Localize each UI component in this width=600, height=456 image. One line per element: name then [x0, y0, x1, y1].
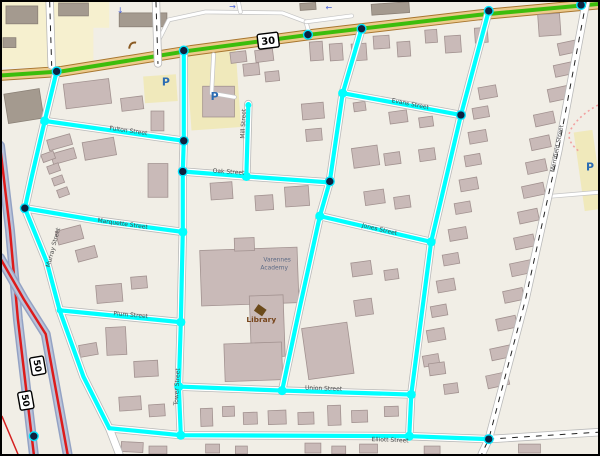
route-50-shield: 50 — [29, 356, 46, 376]
selected-route-edge[interactable] — [409, 11, 488, 436]
building — [472, 106, 490, 119]
building — [57, 187, 70, 198]
building — [394, 195, 411, 209]
building — [329, 43, 343, 61]
building — [351, 145, 379, 168]
parking-icon: P — [162, 75, 170, 88]
building — [364, 189, 386, 206]
route-50-shield-text: 50 — [31, 359, 43, 373]
building — [47, 134, 73, 151]
route-junction-dot[interactable] — [176, 431, 185, 440]
building — [149, 404, 166, 417]
network-node-marker[interactable] — [457, 111, 466, 120]
building — [120, 96, 143, 111]
library-label: Library — [246, 315, 276, 324]
route-junction-dot-small[interactable] — [57, 307, 63, 313]
building — [301, 102, 324, 120]
building — [389, 110, 408, 124]
route-junction-dot[interactable] — [176, 318, 185, 327]
building — [302, 322, 354, 379]
route-50-shield-text: 50 — [19, 394, 31, 408]
route-junction-dot[interactable] — [278, 386, 287, 395]
building — [459, 177, 479, 192]
network-node-marker[interactable] — [484, 435, 493, 444]
building — [332, 446, 346, 454]
building — [200, 408, 213, 426]
network-node-marker[interactable] — [20, 204, 29, 213]
building — [243, 63, 260, 76]
building — [424, 446, 440, 454]
landmark-curl — [129, 43, 136, 49]
building — [210, 182, 233, 200]
building — [268, 410, 286, 424]
building — [255, 195, 274, 211]
building — [3, 38, 16, 48]
service-road — [238, 2, 240, 12]
building — [384, 152, 401, 166]
building — [47, 163, 61, 175]
building — [425, 29, 438, 43]
building — [224, 342, 283, 382]
building — [442, 252, 460, 265]
building — [119, 396, 142, 411]
building — [106, 327, 127, 356]
network-node-marker[interactable] — [577, 2, 586, 9]
network-node-marker[interactable] — [304, 30, 313, 39]
parking-lot — [143, 74, 178, 103]
building — [468, 129, 488, 144]
building — [284, 186, 309, 207]
street-label: Marquette Street — [97, 217, 149, 231]
building — [131, 276, 148, 289]
building — [63, 79, 111, 109]
building — [300, 2, 316, 10]
building — [418, 148, 435, 162]
building — [514, 234, 536, 250]
building — [222, 406, 234, 416]
street-selected-casing — [409, 11, 488, 436]
street-label: Elliott Street — [371, 436, 409, 444]
route-junction-dot[interactable] — [427, 237, 436, 246]
building — [243, 412, 257, 424]
street-label: Murray Street — [45, 226, 62, 268]
building — [397, 41, 411, 57]
building — [235, 446, 247, 454]
building — [309, 41, 323, 61]
oneway-arrow-icon: ← — [325, 3, 332, 12]
route-junction-dot[interactable] — [407, 390, 416, 399]
network-node-marker[interactable] — [178, 167, 187, 176]
route-junction-dot[interactable] — [338, 89, 347, 98]
network-node-marker[interactable] — [29, 432, 38, 441]
building — [384, 406, 398, 416]
street-top-west — [50, 2, 52, 65]
building — [538, 13, 561, 36]
building — [265, 71, 280, 82]
street-selected — [409, 11, 488, 436]
building — [4, 89, 44, 124]
building — [518, 208, 540, 224]
building — [430, 304, 448, 317]
academy-label-line2: Academy — [260, 265, 288, 272]
building — [79, 343, 99, 358]
route-junction-dot[interactable] — [315, 212, 324, 221]
network-node-marker[interactable] — [179, 46, 188, 55]
building — [354, 298, 374, 316]
map-svg[interactable]: Fulton StreetMarquette StreetMurray Stre… — [2, 2, 598, 454]
street-label: Merrifield Street — [549, 124, 565, 173]
building — [305, 443, 321, 453]
building — [464, 153, 482, 166]
building — [353, 101, 366, 111]
building — [351, 260, 373, 277]
building — [230, 51, 247, 64]
building — [96, 283, 123, 303]
building — [149, 446, 167, 454]
route-junction-dot[interactable] — [178, 227, 187, 236]
building — [373, 35, 390, 49]
building — [121, 442, 143, 453]
building — [151, 111, 164, 131]
street-label: Jones Street — [360, 222, 398, 237]
network-node-marker[interactable] — [357, 24, 366, 33]
network-node-marker[interactable] — [52, 67, 61, 76]
map-viewport[interactable]: Fulton StreetMarquette StreetMurray Stre… — [0, 0, 600, 456]
building — [522, 182, 546, 198]
street-label: Union Street — [305, 385, 343, 393]
building — [234, 238, 254, 252]
route-junction-dot-small[interactable] — [245, 102, 251, 108]
building — [448, 227, 468, 242]
building — [454, 201, 472, 214]
route-30-shield: 30 — [257, 32, 280, 49]
building — [384, 269, 399, 281]
building — [298, 412, 314, 424]
network-node-marker[interactable] — [179, 136, 188, 145]
building — [525, 159, 547, 175]
oneway-arrow-icon: → — [229, 2, 236, 11]
building — [426, 328, 446, 343]
building — [351, 410, 367, 422]
building — [443, 383, 458, 395]
oneway-arrow-icon: ↓ — [117, 6, 124, 15]
building — [305, 128, 322, 141]
building — [59, 3, 89, 16]
parking-icon: P — [211, 90, 219, 103]
building — [519, 444, 541, 453]
building — [134, 360, 159, 377]
building — [371, 2, 409, 15]
building — [478, 85, 498, 100]
building — [75, 245, 97, 262]
building — [255, 49, 274, 63]
building — [529, 135, 551, 151]
building — [419, 116, 434, 128]
parking-icon: P — [586, 161, 594, 174]
building — [360, 444, 378, 453]
network-node-marker[interactable] — [325, 177, 334, 186]
building — [6, 6, 38, 24]
building — [206, 444, 220, 453]
building — [436, 278, 456, 293]
route-junction-dot[interactable] — [40, 116, 49, 125]
building — [444, 35, 461, 53]
route-50-shield: 50 — [17, 390, 34, 410]
network-node-marker[interactable] — [484, 7, 493, 16]
building — [327, 405, 341, 425]
building — [82, 137, 116, 160]
building — [533, 111, 555, 127]
route-30-shield-text: 30 — [261, 35, 276, 48]
building — [428, 362, 445, 376]
academy-label-line1: Varennes — [263, 257, 291, 264]
ramp-line — [2, 416, 18, 454]
building — [52, 175, 65, 186]
building — [148, 164, 168, 198]
